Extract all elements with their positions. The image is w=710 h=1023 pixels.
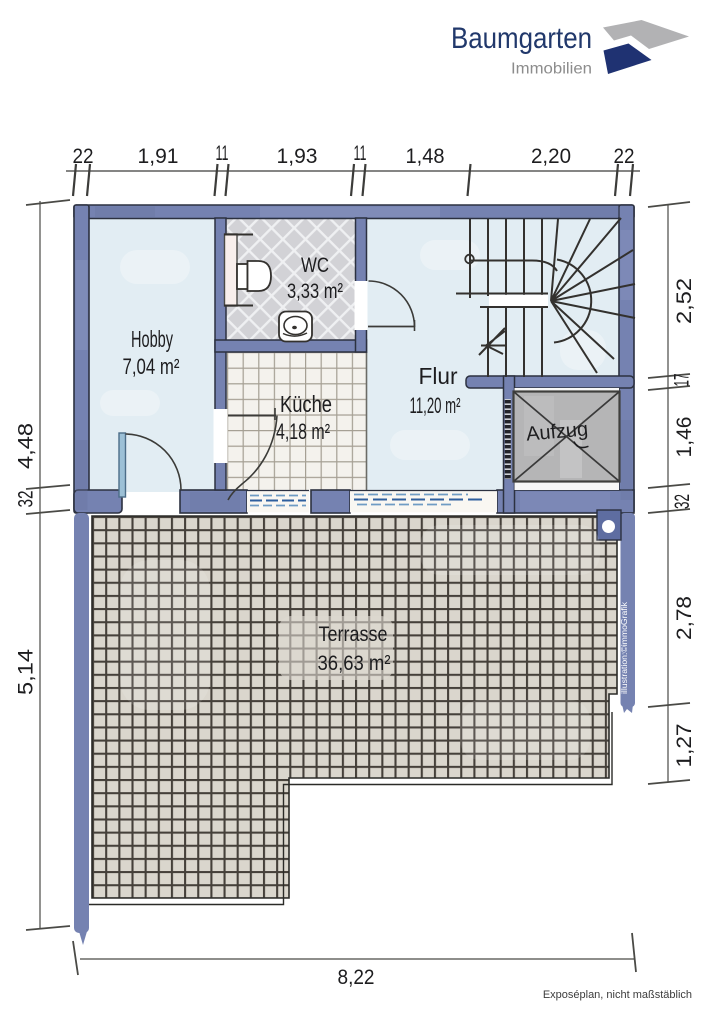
svg-text:3,33 m²: 3,33 m² <box>287 280 343 303</box>
svg-text:1,27: 1,27 <box>673 724 696 768</box>
svg-text:Terrasse: Terrasse <box>319 623 388 646</box>
svg-text:17: 17 <box>671 374 694 387</box>
svg-text:4,18 m²: 4,18 m² <box>276 419 330 444</box>
svg-text:5,14: 5,14 <box>15 649 38 695</box>
svg-text:4,48: 4,48 <box>15 423 38 469</box>
svg-text:22: 22 <box>73 145 94 168</box>
svg-text:36,63 m²: 36,63 m² <box>318 652 391 675</box>
svg-text:Immobilien: Immobilien <box>511 61 592 78</box>
svg-text:1,93: 1,93 <box>277 145 318 168</box>
svg-text:illustration:©immoGrafik: illustration:©immoGrafik <box>620 601 629 694</box>
svg-text:2,20: 2,20 <box>531 145 571 168</box>
svg-text:11: 11 <box>216 142 229 165</box>
svg-text:22: 22 <box>614 145 635 168</box>
svg-text:Baumgarten: Baumgarten <box>451 22 592 55</box>
svg-text:11: 11 <box>354 142 367 165</box>
svg-text:WC: WC <box>301 254 329 277</box>
svg-text:Flur: Flur <box>419 363 458 389</box>
svg-text:11,20 m²: 11,20 m² <box>410 393 461 418</box>
svg-text:8,22: 8,22 <box>338 966 375 989</box>
svg-text:32: 32 <box>15 491 38 508</box>
svg-text:1,46: 1,46 <box>673 417 696 458</box>
svg-text:2,78: 2,78 <box>673 596 696 640</box>
svg-text:2,52: 2,52 <box>673 278 696 324</box>
svg-text:1,91: 1,91 <box>138 145 179 168</box>
svg-text:Hobby: Hobby <box>131 326 173 352</box>
svg-text:32: 32 <box>671 494 694 509</box>
svg-text:1,48: 1,48 <box>406 145 445 168</box>
svg-text:Exposéplan, nicht maßstäblich: Exposéplan, nicht maßstäblich <box>543 989 692 1001</box>
svg-text:Küche: Küche <box>280 391 332 417</box>
svg-text:7,04 m²: 7,04 m² <box>123 354 180 379</box>
